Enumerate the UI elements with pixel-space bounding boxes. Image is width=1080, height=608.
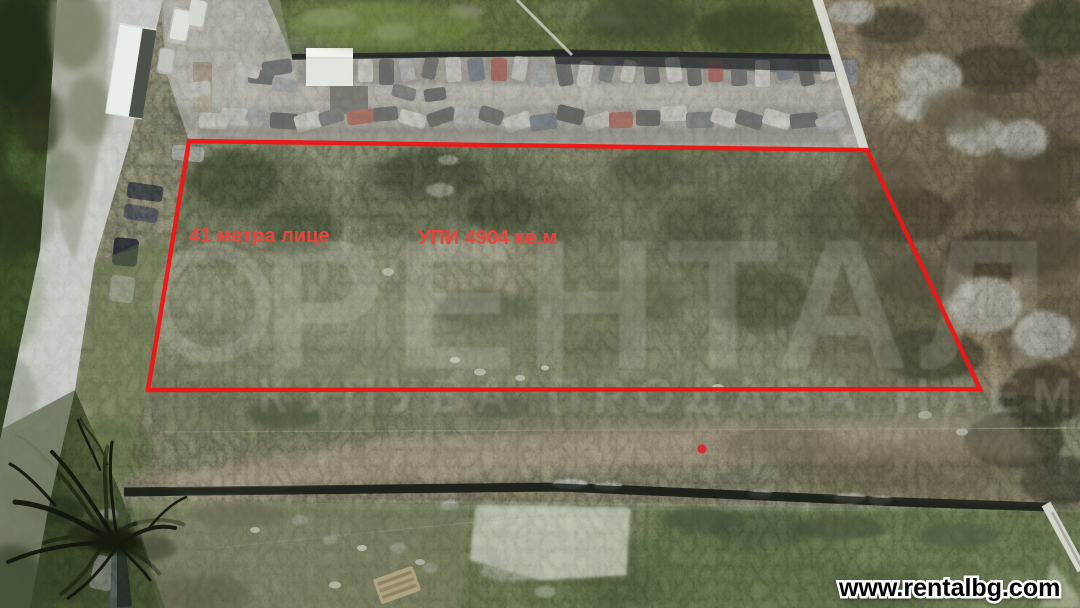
svg-text:КУПУВА ПРОДАВА НАЕМИ: КУПУВА ПРОДАВА НАЕМИ	[258, 370, 1080, 423]
svg-text:41 метра лице: 41 метра лице	[189, 225, 330, 247]
svg-text:УПИ 4904 кв.м: УПИ 4904 кв.м	[418, 227, 557, 249]
svg-text:www.rentalbg.com: www.rentalbg.com	[838, 574, 1060, 602]
